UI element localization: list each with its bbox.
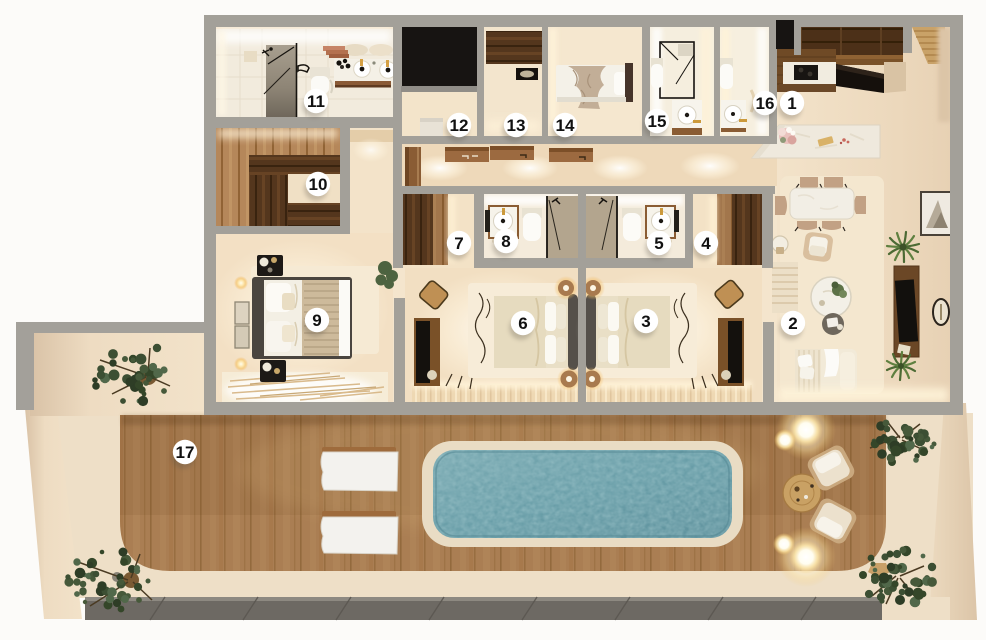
svg-text:7: 7 bbox=[454, 234, 463, 253]
svg-text:17: 17 bbox=[176, 443, 195, 462]
svg-text:3: 3 bbox=[641, 312, 650, 331]
svg-text:2: 2 bbox=[788, 314, 797, 333]
svg-text:4: 4 bbox=[701, 234, 711, 253]
svg-text:1: 1 bbox=[787, 94, 796, 113]
svg-text:12: 12 bbox=[450, 116, 469, 135]
svg-text:9: 9 bbox=[312, 311, 321, 330]
svg-text:13: 13 bbox=[507, 116, 526, 135]
svg-text:11: 11 bbox=[307, 92, 325, 111]
svg-text:16: 16 bbox=[756, 94, 775, 113]
svg-text:5: 5 bbox=[654, 234, 663, 253]
svg-text:8: 8 bbox=[501, 232, 510, 251]
svg-text:10: 10 bbox=[309, 175, 328, 194]
svg-text:15: 15 bbox=[648, 112, 667, 131]
svg-text:6: 6 bbox=[518, 314, 527, 333]
svg-text:14: 14 bbox=[556, 116, 575, 135]
